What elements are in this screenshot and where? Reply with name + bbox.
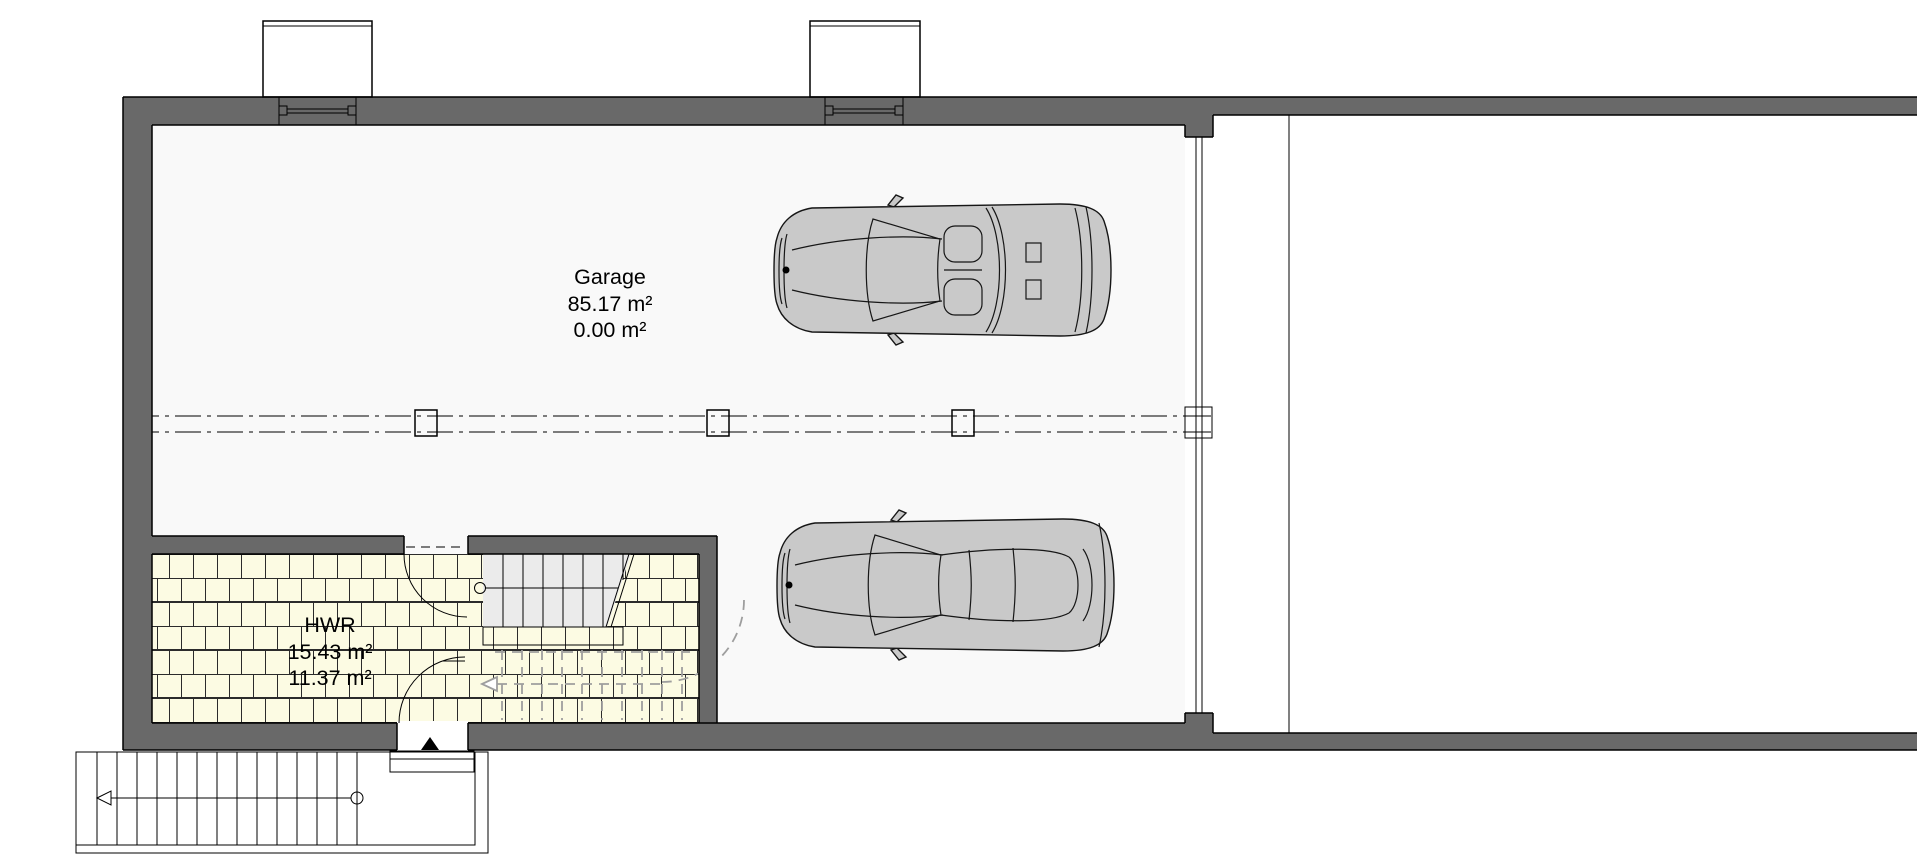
wall-left[interactable] — [123, 97, 152, 750]
exterior-stair[interactable] — [76, 752, 488, 853]
car-cabrio-body — [774, 204, 1111, 336]
window-1[interactable] — [263, 21, 372, 125]
window-2-light-well — [810, 21, 920, 97]
exterior-stair-arrow-icon — [97, 791, 111, 805]
hwr-area-total: 15.43 m² — [288, 640, 373, 664]
floor-plan-viewport[interactable]: Garage 85.17 m² 0.00 m² HWR 15.43 m² 11.… — [0, 0, 1920, 857]
entry-threshold — [390, 751, 474, 772]
garage-door-pillar[interactable] — [1185, 407, 1212, 438]
garage-door[interactable] — [1185, 137, 1212, 713]
wall-stair-right[interactable] — [699, 554, 717, 723]
hwr-room-name: HWR — [304, 613, 355, 637]
car-cabrio[interactable] — [774, 195, 1111, 345]
garage-label[interactable]: Garage 85.17 m² 0.00 m² — [568, 265, 653, 342]
window-1-light-well — [263, 21, 372, 97]
garage-room-name: Garage — [574, 265, 646, 289]
car-cabrio-hood-ornament — [783, 267, 790, 274]
interior-stair[interactable] — [475, 554, 635, 627]
floor-plan-canvas[interactable]: Garage 85.17 m² 0.00 m² HWR 15.43 m² 11.… — [0, 0, 1920, 857]
hwr-area-secondary: 11.37 m² — [288, 666, 371, 690]
garage-area-total: 85.17 m² — [568, 292, 653, 316]
exterior-stair-outer — [76, 752, 488, 853]
garage-area-secondary: 0.00 m² — [574, 318, 647, 342]
car-sedan[interactable] — [777, 510, 1114, 660]
wall-hwr-top[interactable] — [152, 536, 404, 554]
wall-stair-top[interactable] — [468, 536, 717, 554]
car-sedan-body — [777, 519, 1114, 651]
car-sedan-hood-ornament — [786, 582, 793, 589]
